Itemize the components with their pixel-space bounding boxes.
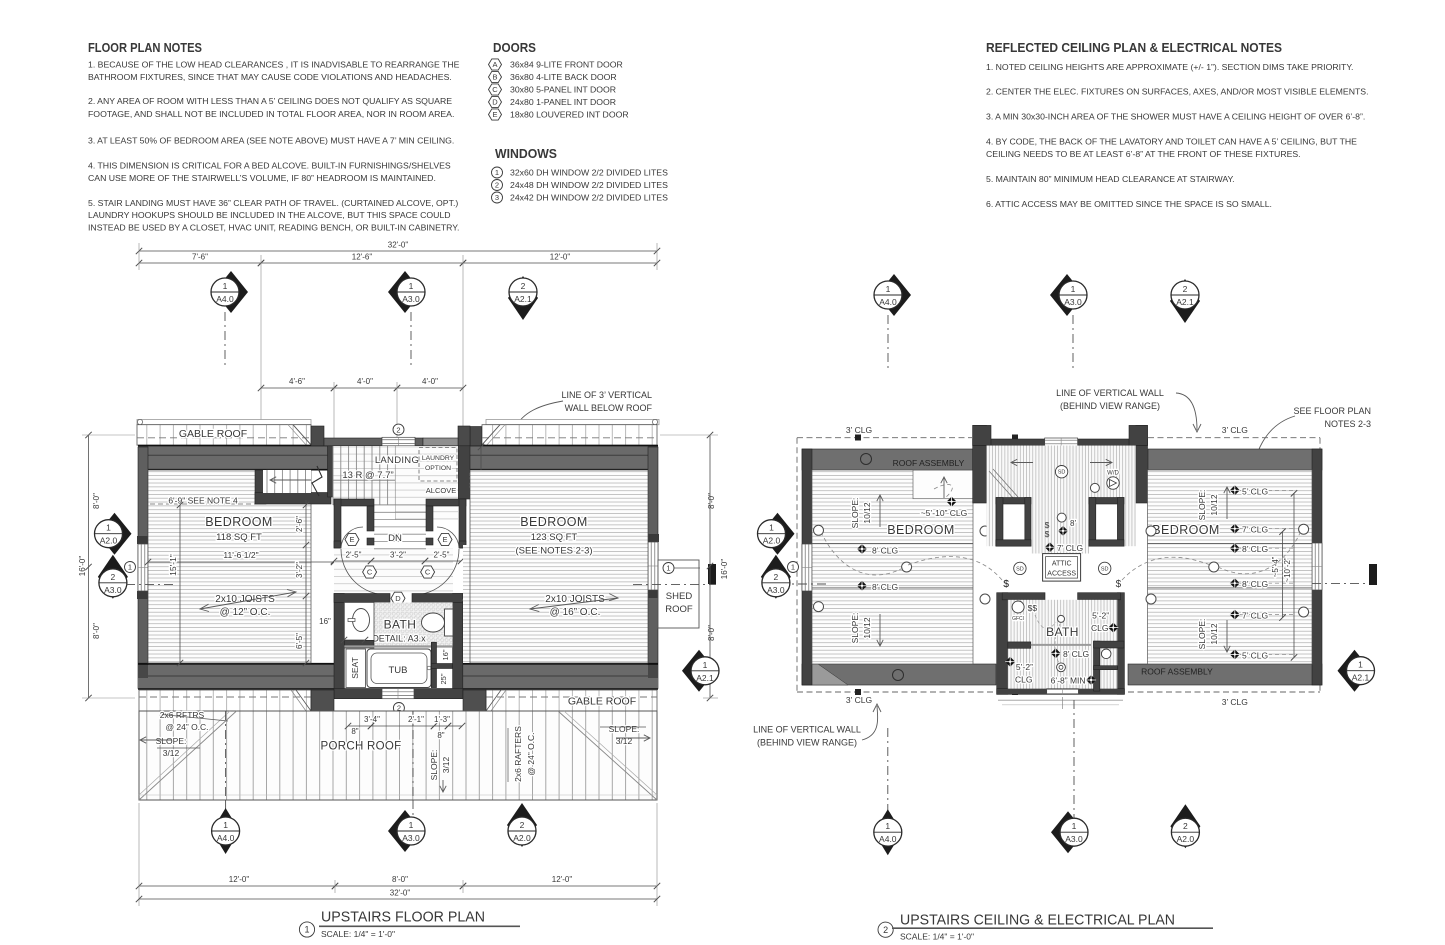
svg-text:C: C <box>367 568 373 577</box>
svg-text:SD: SD <box>1016 566 1024 572</box>
svg-text:SEE FLOOR PLAN: SEE FLOOR PLAN <box>1293 406 1371 416</box>
svg-text:1: 1 <box>128 563 132 572</box>
svg-text:3’ CLG: 3’ CLG <box>846 425 872 435</box>
svg-text:24x80 1-PANEL INT DOOR: 24x80 1-PANEL INT DOOR <box>510 97 616 107</box>
svg-text:2: 2 <box>774 572 779 582</box>
svg-text:8'-0": 8'-0" <box>707 493 716 509</box>
svg-text:E: E <box>442 535 447 544</box>
svg-text:5. MAINTAIN 80” MINIMUM HEAD C: 5. MAINTAIN 80” MINIMUM HEAD CLEARANCE A… <box>986 174 1235 184</box>
svg-text:ROOF ASSEMBLY: ROOF ASSEMBLY <box>1141 667 1213 677</box>
svg-text:1: 1 <box>703 660 708 670</box>
svg-text:C: C <box>425 568 431 577</box>
svg-text:B: B <box>492 73 497 82</box>
svg-text:BEDROOM: BEDROOM <box>1152 523 1219 537</box>
svg-text:1: 1 <box>1071 284 1076 294</box>
svg-text:A3.0: A3.0 <box>402 294 420 304</box>
svg-text:8’: 8’ <box>1070 519 1076 528</box>
svg-text:3’ CLG: 3’ CLG <box>1222 425 1248 435</box>
svg-text:A: A <box>492 60 497 69</box>
svg-text:10/12: 10/12 <box>862 617 872 639</box>
svg-text:1. BECAUSE OF THE LOW HEAD CLE: 1. BECAUSE OF THE LOW HEAD CLEARANCES , … <box>88 60 460 70</box>
svg-text:3. AT LEAST 50% OF BEDROOM ARE: 3. AT LEAST 50% OF BEDROOM AREA (SEE NOT… <box>88 136 454 146</box>
svg-text:ALCOVE: ALCOVE <box>426 486 456 495</box>
svg-text:12'-0": 12'-0" <box>552 875 573 884</box>
svg-text:~10’-2”: ~10’-2” <box>1283 557 1292 582</box>
svg-text:A4.0: A4.0 <box>217 833 235 843</box>
svg-text:TUB: TUB <box>389 665 408 676</box>
svg-text:32x60 DH WINDOW 2/2 DIVIDED LI: 32x60 DH WINDOW 2/2 DIVIDED LITES <box>510 168 668 178</box>
svg-text:D: D <box>492 98 498 107</box>
svg-text:A2.1: A2.1 <box>1176 297 1194 307</box>
svg-text:5’ CLG: 5’ CLG <box>1242 650 1268 660</box>
svg-text:W/D: W/D <box>1107 471 1119 477</box>
svg-text:3/12: 3/12 <box>163 748 180 758</box>
svg-text:SLOPE:: SLOPE: <box>1197 490 1207 521</box>
svg-text:A2.0: A2.0 <box>763 536 781 546</box>
svg-text:2: 2 <box>495 181 499 190</box>
svg-text:SD: SD <box>1101 566 1109 572</box>
svg-text:30x80 5-PANEL INT DOOR: 30x80 5-PANEL INT DOOR <box>510 85 616 95</box>
svg-text:SLOPE:: SLOPE: <box>609 724 640 734</box>
svg-text:1: 1 <box>769 523 774 533</box>
svg-text:GABLE ROOF: GABLE ROOF <box>179 428 247 440</box>
svg-text:1: 1 <box>409 281 414 291</box>
svg-text:24x48 DH WINDOW 2/2 DIVIDED LI: 24x48 DH WINDOW 2/2 DIVIDED LITES <box>510 180 668 190</box>
svg-text:BEDROOM: BEDROOM <box>887 523 954 537</box>
svg-text:3/12: 3/12 <box>616 736 633 746</box>
svg-text:1: 1 <box>223 820 228 830</box>
svg-text:A3.0: A3.0 <box>767 585 785 595</box>
svg-text:A2.1: A2.1 <box>1352 673 1370 683</box>
svg-text:FLOOR PLAN NOTES: FLOOR PLAN NOTES <box>88 40 202 55</box>
svg-text:SLOPE:: SLOPE: <box>850 613 860 644</box>
svg-text:5’-2”: 5’-2” <box>1092 611 1109 621</box>
svg-text:CEILING NEEDS TO BE AT LEAST 6: CEILING NEEDS TO BE AT LEAST 6’-8” AT TH… <box>986 149 1301 159</box>
svg-text:WINDOWS: WINDOWS <box>495 146 557 161</box>
svg-text:16'-0": 16'-0" <box>720 559 729 580</box>
svg-text:12'-0": 12'-0" <box>229 875 250 884</box>
svg-text:1: 1 <box>223 281 228 291</box>
svg-text:2: 2 <box>521 281 526 291</box>
svg-text:6. ATTIC ACCESS MAY BE OMITTED: 6. ATTIC ACCESS MAY BE OMITTED SINCE THE… <box>986 199 1272 209</box>
svg-text:UPSTAIRS FLOOR PLAN: UPSTAIRS FLOOR PLAN <box>321 909 485 926</box>
svg-text:FOOTAGE, AND SHALL NOT BE INCL: FOOTAGE, AND SHALL NOT BE INCLUDED IN TO… <box>88 109 454 119</box>
svg-text:4. THIS DIMENSION IS CRITICAL: 4. THIS DIMENSION IS CRITICAL FOR A BED … <box>88 161 451 171</box>
svg-text:ACCESS: ACCESS <box>1047 571 1076 578</box>
svg-text:8": 8" <box>351 727 358 736</box>
svg-text:8'-0": 8'-0" <box>392 875 408 884</box>
svg-text:$$: $$ <box>1028 603 1038 613</box>
svg-text:16'-0": 16'-0" <box>78 556 87 577</box>
svg-text:4. BY CODE, THE BACK OF THE LA: 4. BY CODE, THE BACK OF THE LAVATORY AND… <box>986 137 1357 147</box>
svg-text:32'-0": 32'-0" <box>388 241 409 250</box>
svg-text:2'-5": 2'-5" <box>434 551 450 560</box>
svg-text:A2.1: A2.1 <box>696 673 714 683</box>
svg-text:6'-5": 6'-5" <box>295 633 304 649</box>
svg-text:LINE OF 3’ VERTICAL: LINE OF 3’ VERTICAL <box>561 390 652 400</box>
svg-text:3: 3 <box>495 193 499 202</box>
svg-text:LANDING: LANDING <box>375 455 419 466</box>
svg-text:2. CENTER THE ELEC. FIXTURES O: 2. CENTER THE ELEC. FIXTURES ON SURFACES… <box>986 87 1369 97</box>
svg-text:ATTIC: ATTIC <box>1052 561 1072 568</box>
svg-text:1. NOTED CEILING HEIGHTS ARE A: 1. NOTED CEILING HEIGHTS ARE APPROXIMATE… <box>986 62 1353 72</box>
svg-text:10/12: 10/12 <box>1209 623 1219 645</box>
svg-text:7’ CLG: 7’ CLG <box>1057 543 1083 553</box>
svg-text:1: 1 <box>409 820 414 830</box>
svg-text:16": 16" <box>441 649 450 660</box>
svg-text:PORCH ROOF: PORCH ROOF <box>321 741 402 753</box>
svg-text:13 R @ 7.7”: 13 R @ 7.7” <box>342 470 393 481</box>
svg-text:E: E <box>492 110 497 119</box>
svg-text:4'-0": 4'-0" <box>357 377 373 386</box>
svg-text:A3.0: A3.0 <box>1065 834 1083 844</box>
svg-text:7’ CLG: 7’ CLG <box>1242 611 1268 621</box>
svg-text:15'-1": 15'-1" <box>168 554 178 576</box>
svg-text:A3.0: A3.0 <box>402 833 420 843</box>
svg-text:6'-9" SEE NOTE 4: 6'-9" SEE NOTE 4 <box>168 496 238 506</box>
svg-text:2'-6": 2'-6" <box>295 516 304 532</box>
svg-text:7’ CLG: 7’ CLG <box>1242 525 1268 535</box>
svg-text:SLOPE:: SLOPE: <box>1197 619 1207 650</box>
svg-text:BATH: BATH <box>1046 625 1079 639</box>
svg-text:2: 2 <box>520 820 525 830</box>
svg-text:8'-0": 8'-0" <box>707 625 716 641</box>
svg-text:2: 2 <box>1183 821 1188 831</box>
svg-text:3'-2": 3'-2" <box>295 562 304 578</box>
svg-text:1: 1 <box>885 821 890 831</box>
svg-text:LAUNDRY HOOKUPS SHOULD BE INCL: LAUNDRY HOOKUPS SHOULD BE INCLUDED IN TH… <box>88 210 451 220</box>
svg-text:8'-0": 8'-0" <box>92 623 101 639</box>
svg-text:DETAIL: A3.x: DETAIL: A3.x <box>372 634 426 644</box>
svg-text:8’ CLG: 8’ CLG <box>872 582 898 592</box>
svg-text:36x84 9-LITE FRONT DOOR: 36x84 9-LITE FRONT DOOR <box>510 60 623 70</box>
svg-text:A3.0: A3.0 <box>1064 297 1082 307</box>
svg-text:1: 1 <box>666 564 670 573</box>
svg-text:$: $ <box>1003 579 1009 590</box>
svg-text:16": 16" <box>319 617 331 626</box>
svg-text:SEAT: SEAT <box>350 657 360 679</box>
svg-text:CLG: CLG <box>1091 623 1108 633</box>
svg-text:A4.0: A4.0 <box>879 834 897 844</box>
svg-text:SLOPE:: SLOPE: <box>156 736 187 746</box>
svg-text:BEDROOM: BEDROOM <box>205 515 272 529</box>
svg-text:DOORS: DOORS <box>493 40 536 55</box>
svg-text:11'-6 1/2": 11'-6 1/2" <box>223 550 258 560</box>
svg-text:BATHROOM FIXTURES, SINCE THAT: BATHROOM FIXTURES, SINCE THAT MAY CAUSE … <box>88 72 452 82</box>
svg-text:E: E <box>349 535 354 544</box>
svg-text:1: 1 <box>495 168 499 177</box>
svg-text:CLG: CLG <box>1015 675 1032 685</box>
svg-text:SLOPE:: SLOPE: <box>850 498 860 529</box>
svg-text:18x80 LOUVERED INT DOOR: 18x80 LOUVERED INT DOOR <box>510 110 629 120</box>
svg-text:GABLE ROOF: GABLE ROOF <box>568 696 636 708</box>
svg-text:~5’-10” CLG: ~5’-10” CLG <box>921 508 968 518</box>
svg-text:ROOF ASSEMBLY: ROOF ASSEMBLY <box>893 458 965 468</box>
svg-text:BEDROOM: BEDROOM <box>520 515 587 529</box>
svg-text:SD: SD <box>1058 470 1066 476</box>
svg-text:118 SQ FT: 118 SQ FT <box>216 532 262 543</box>
svg-text:1: 1 <box>106 523 111 533</box>
svg-text:5. STAIR LANDING MUST HAVE 36”: 5. STAIR LANDING MUST HAVE 36” CLEAR PAT… <box>88 198 458 208</box>
svg-text:1: 1 <box>791 563 795 572</box>
svg-text:SHED: SHED <box>666 591 693 602</box>
svg-text:4'-0": 4'-0" <box>422 377 438 386</box>
svg-text:5’ CLG: 5’ CLG <box>1242 486 1268 496</box>
svg-text:A4.0: A4.0 <box>879 297 897 307</box>
svg-text:123 SQ FT: 123 SQ FT <box>531 532 578 543</box>
svg-text:10/12: 10/12 <box>862 502 872 524</box>
svg-text:CAN USE MORE OF THE STAIRWELL’: CAN USE MORE OF THE STAIRWELL’S VOLUME, … <box>88 173 436 183</box>
svg-text:3/12: 3/12 <box>441 756 451 773</box>
svg-text:3. A MIN 30x30-INCH AREA OF TH: 3. A MIN 30x30-INCH AREA OF THE SHOWER M… <box>986 112 1365 122</box>
svg-text:36x80 4-LITE BACK DOOR: 36x80 4-LITE BACK DOOR <box>510 72 617 82</box>
svg-text:5’-2”: 5’-2” <box>1016 662 1033 672</box>
svg-text:12'-0": 12'-0" <box>550 253 571 262</box>
svg-text:1: 1 <box>1072 821 1077 831</box>
svg-text:A2.0: A2.0 <box>1177 834 1195 844</box>
svg-text:GFCI: GFCI <box>1012 616 1024 622</box>
svg-text:INSTEAD BE USED BY A CLOSET, H: INSTEAD BE USED BY A CLOSET, HVAC UNIT, … <box>88 223 459 233</box>
svg-text:ROOF: ROOF <box>665 604 693 615</box>
svg-text:$: $ <box>1116 579 1122 590</box>
svg-text:A2.0: A2.0 <box>513 833 531 843</box>
svg-text:@ 16” O.C.: @ 16” O.C. <box>550 607 601 618</box>
svg-text:REFLECTED CEILING PLAN & ELECT: REFLECTED CEILING PLAN & ELECTRICAL NOTE… <box>986 40 1282 55</box>
svg-text:32'-0": 32'-0" <box>390 889 411 898</box>
svg-text:24x42 DH WINDOW 2/2 DIVIDED LI: 24x42 DH WINDOW 2/2 DIVIDED LITES <box>510 193 668 203</box>
svg-text:8’ CLG: 8’ CLG <box>1242 544 1268 554</box>
svg-text:BATH: BATH <box>384 618 417 632</box>
svg-text:$: $ <box>1045 529 1050 539</box>
svg-text:2x10 JOISTS: 2x10 JOISTS <box>215 594 275 605</box>
svg-text:1: 1 <box>886 284 891 294</box>
svg-text:UPSTAIRS CEILING & ELECTRICAL: UPSTAIRS CEILING & ELECTRICAL PLAN <box>900 911 1175 928</box>
svg-text:2: 2 <box>1183 284 1188 294</box>
svg-text:(SEE NOTES 2-3): (SEE NOTES 2-3) <box>515 546 592 557</box>
svg-text:(BEHIND VIEW RANGE): (BEHIND VIEW RANGE) <box>1060 401 1160 411</box>
svg-text:25": 25" <box>439 673 448 684</box>
svg-text:12'-6": 12'-6" <box>352 253 373 262</box>
svg-text:10/12: 10/12 <box>1209 494 1219 516</box>
svg-text:A4.0: A4.0 <box>216 294 234 304</box>
svg-text:SLOPE:: SLOPE: <box>429 750 439 781</box>
svg-text:8": 8" <box>437 731 444 740</box>
svg-text:1: 1 <box>1358 660 1363 670</box>
svg-text:6’-8” MIN: 6’-8” MIN <box>1051 676 1086 686</box>
svg-text:@ 24” O.C.: @ 24” O.C. <box>165 722 208 732</box>
svg-text:3'-2": 3'-2" <box>390 551 406 560</box>
svg-text:1'-3": 1'-3" <box>434 715 450 724</box>
svg-text:DN: DN <box>388 533 402 544</box>
svg-text:2'-1": 2'-1" <box>408 715 424 724</box>
svg-text:3’ CLG: 3’ CLG <box>846 695 872 705</box>
svg-text:2: 2 <box>396 425 400 434</box>
svg-text:@ 24” O.C.: @ 24” O.C. <box>526 732 536 775</box>
svg-text:A2.1: A2.1 <box>514 294 532 304</box>
svg-text:WALL BELOW ROOF: WALL BELOW ROOF <box>565 403 653 413</box>
svg-text:2'-5": 2'-5" <box>346 551 362 560</box>
svg-text:3'-4": 3'-4" <box>364 715 380 724</box>
svg-text:OPTION: OPTION <box>425 465 451 472</box>
svg-text:LINE OF VERTICAL WALL: LINE OF VERTICAL WALL <box>1056 388 1164 398</box>
svg-text:NOTES 2-3: NOTES 2-3 <box>1324 419 1371 429</box>
svg-text:7'-6": 7'-6" <box>192 253 208 262</box>
svg-text:A3.0: A3.0 <box>104 585 122 595</box>
svg-text:2: 2 <box>111 572 116 582</box>
svg-text:2: 2 <box>883 925 888 935</box>
svg-text:A2.0: A2.0 <box>100 536 118 546</box>
svg-text:8’ CLG: 8’ CLG <box>1242 579 1268 589</box>
svg-text:(BEHIND VIEW RANGE): (BEHIND VIEW RANGE) <box>757 738 857 748</box>
svg-text:SCALE: 1/4" = 1'-0": SCALE: 1/4" = 1'-0" <box>900 932 974 942</box>
svg-text:2x6 RAFTERS: 2x6 RAFTERS <box>513 726 523 782</box>
svg-text:8’ CLG: 8’ CLG <box>872 546 898 556</box>
svg-text:2. ANY AREA OF ROOM WITH LESS: 2. ANY AREA OF ROOM WITH LESS THAN A 5’ … <box>88 96 452 106</box>
svg-text:4'-6": 4'-6" <box>289 377 305 386</box>
svg-text:LINE OF VERTICAL WALL: LINE OF VERTICAL WALL <box>753 725 861 735</box>
svg-text:SCALE: 1/4" = 1'-0": SCALE: 1/4" = 1'-0" <box>321 929 395 939</box>
svg-text:LAUNDRY: LAUNDRY <box>422 455 455 462</box>
svg-text:8’ CLG: 8’ CLG <box>1063 649 1089 659</box>
svg-text:@ 12” O.C.: @ 12” O.C. <box>220 607 271 618</box>
svg-text:~5’-4”: ~5’-4” <box>1271 556 1280 577</box>
svg-text:D: D <box>395 594 401 603</box>
svg-text:8'-0": 8'-0" <box>92 493 101 509</box>
svg-text:1: 1 <box>304 925 309 935</box>
svg-text:3’ CLG: 3’ CLG <box>1222 697 1248 707</box>
svg-text:C: C <box>492 85 498 94</box>
